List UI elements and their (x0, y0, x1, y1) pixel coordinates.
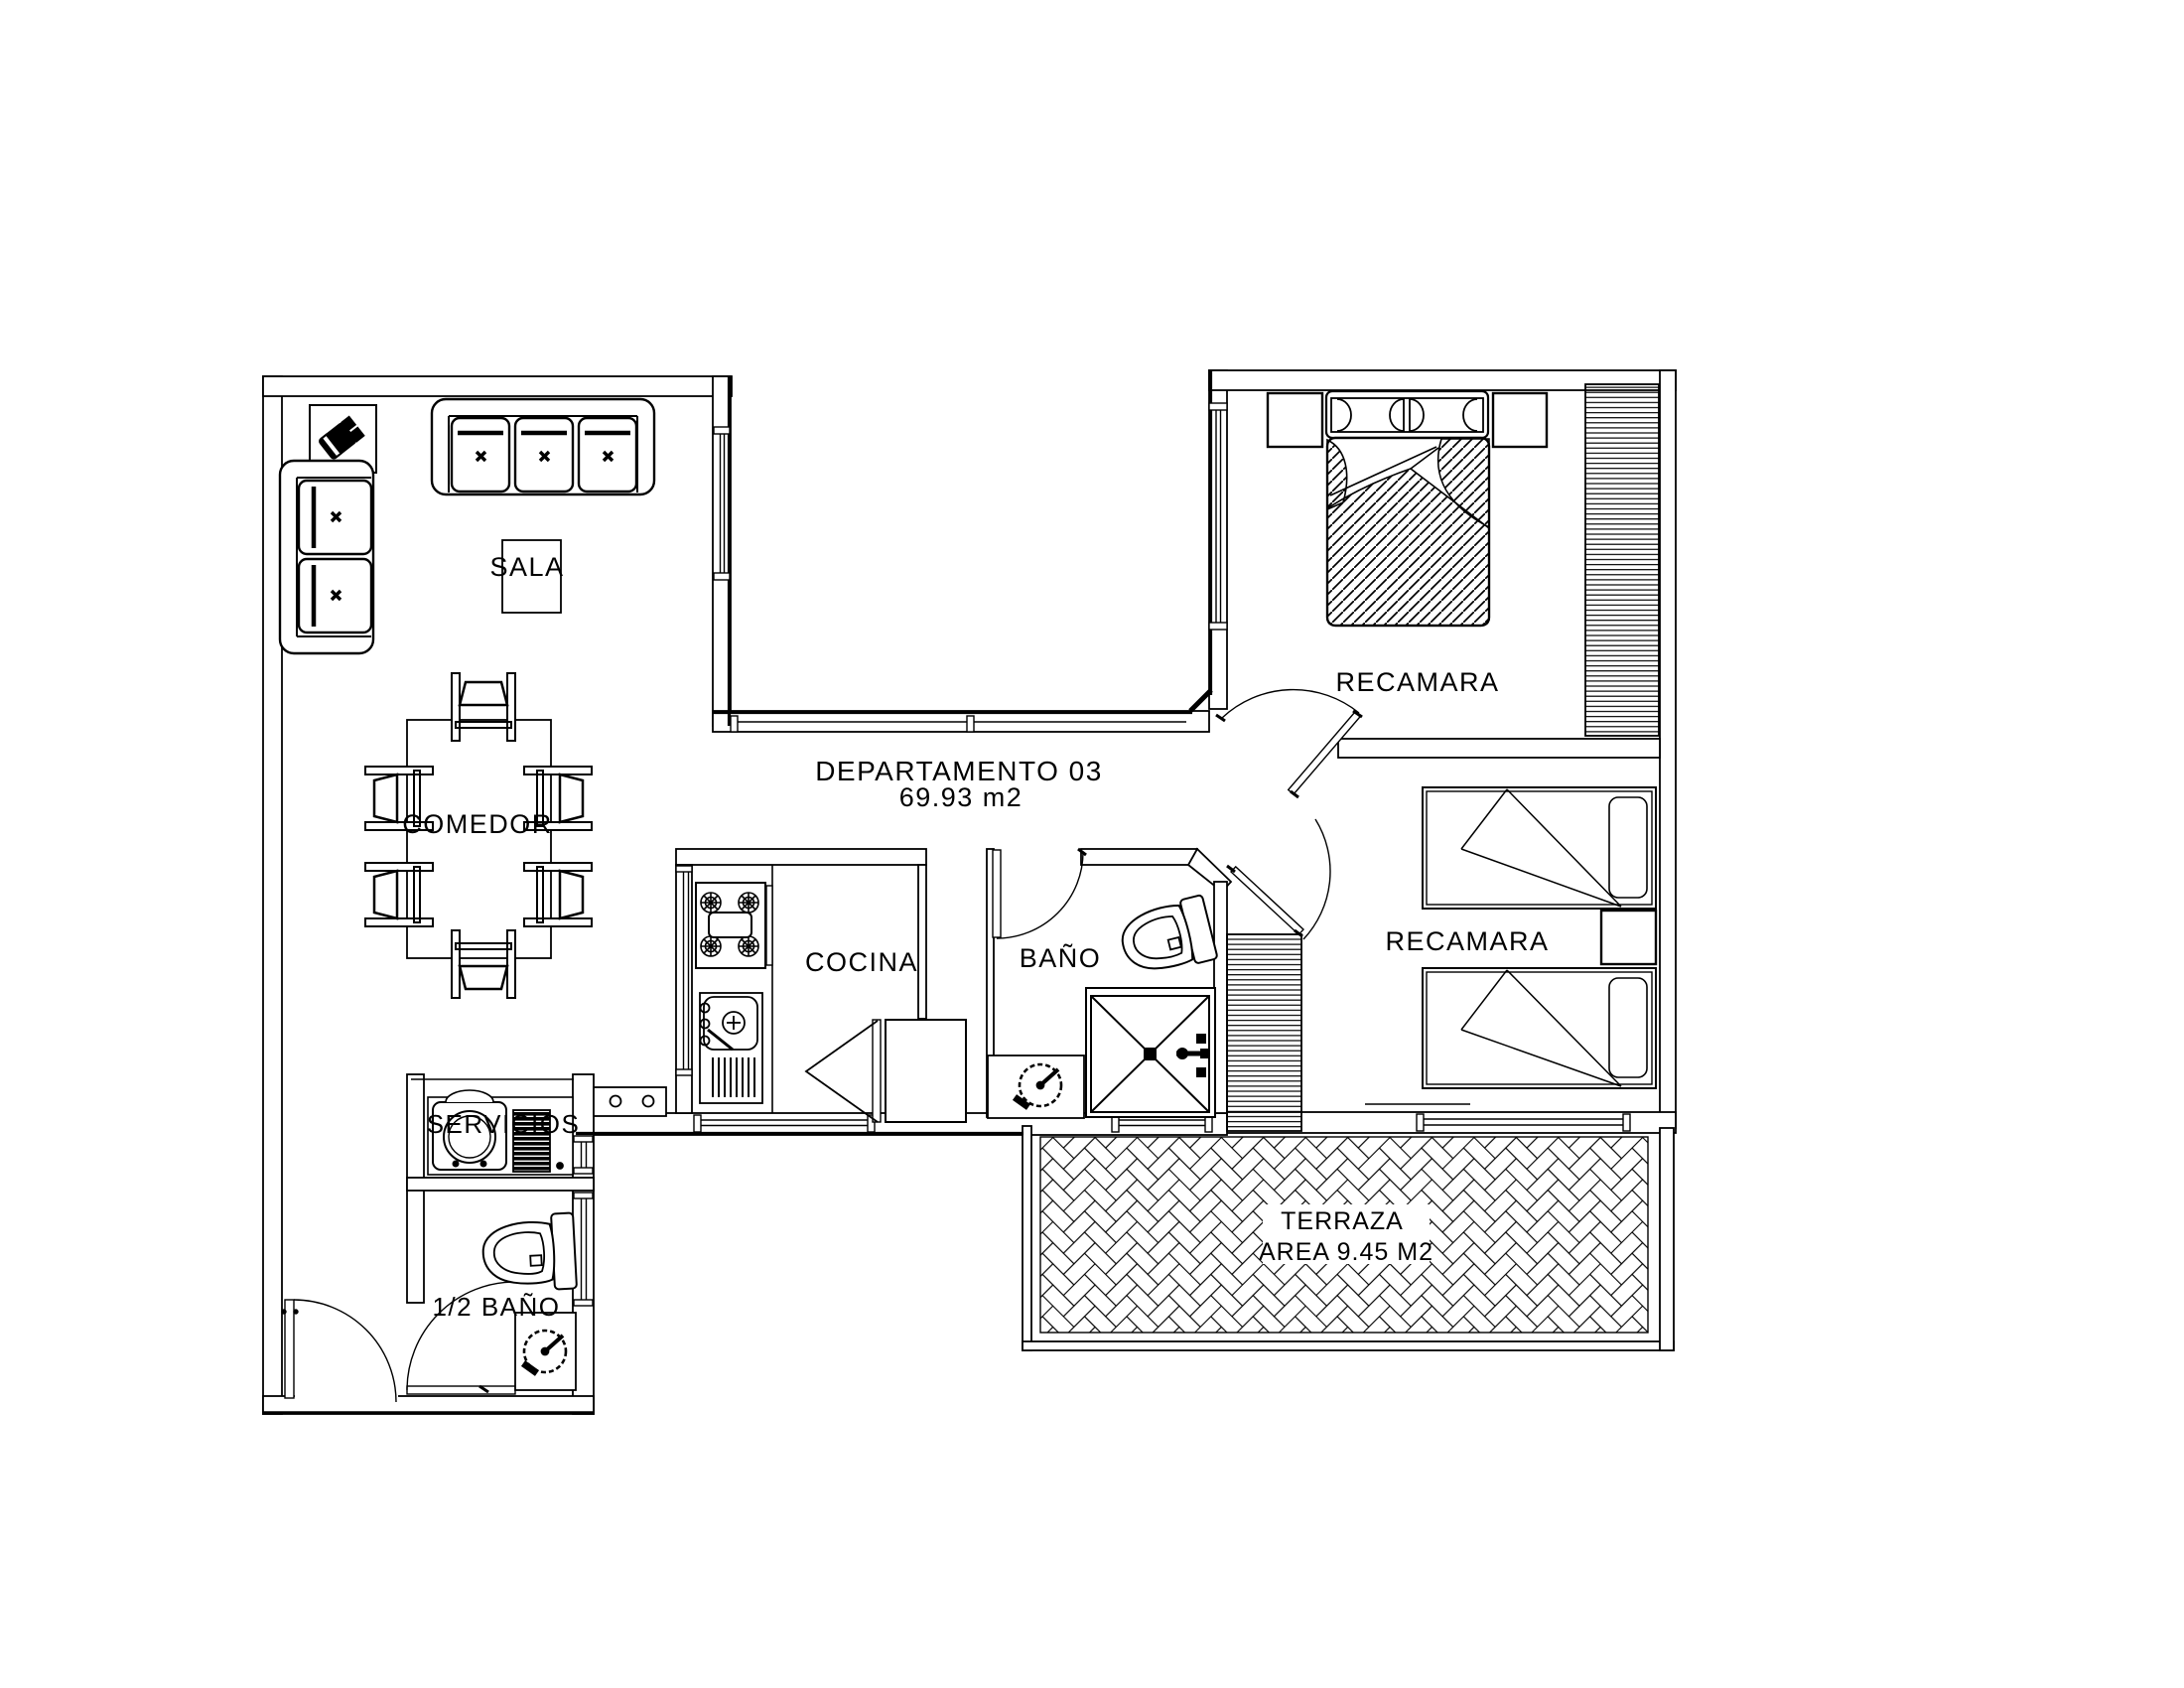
svg-text:COCINA: COCINA (805, 947, 918, 977)
svg-text:AREA 9.45 M2: AREA 9.45 M2 (1259, 1238, 1433, 1266)
svg-text:RECAMARA: RECAMARA (1385, 926, 1549, 956)
svg-text:RECAMARA: RECAMARA (1335, 667, 1499, 697)
svg-text:COMEDOR: COMEDOR (402, 809, 553, 839)
svg-text:BAÑO: BAÑO (1020, 942, 1102, 973)
svg-text:69.93 m2: 69.93 m2 (899, 782, 1024, 812)
svg-text:SALA: SALA (489, 552, 564, 582)
svg-text:TERRAZA: TERRAZA (1281, 1207, 1404, 1235)
svg-text:SERVICIOS: SERVICIOS (427, 1109, 581, 1139)
svg-text:1/2 BAÑO: 1/2 BAÑO (432, 1292, 560, 1322)
